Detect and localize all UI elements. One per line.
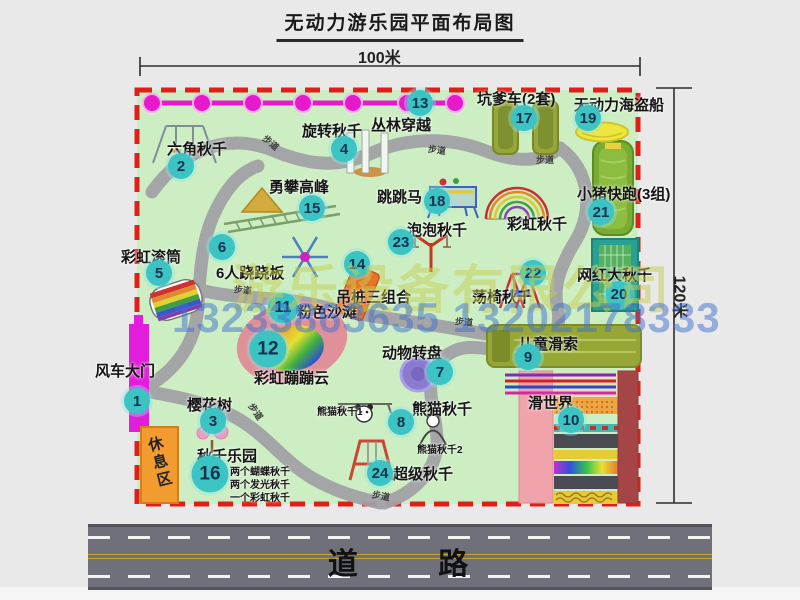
label-panda-swing-1: 熊猫秋千1 [317,403,363,418]
label-seesaw: 6人跷跷板 [216,262,284,283]
label-footpath: 步道 [536,153,554,166]
label-footpath: 步道 [427,142,447,157]
label-climbing-peak: 勇攀高峰 [269,176,329,197]
label-rainbow-swing: 彩虹秋千 [507,213,567,234]
badge-slide-world: 10 [558,407,584,433]
badge-pirate-ship: 19 [575,105,601,131]
label-hanging-post-combo: 吊桩三组合 [336,286,411,307]
badge-hanging-post-combo: 14 [344,251,370,277]
badge-seesaw: 6 [209,234,235,260]
badge-panda-swing: 8 [388,409,414,435]
badge-climbing-peak: 15 [299,195,325,221]
label-pit-cart: 坑爹车(2套) [477,88,555,109]
badge-super-swing: 24 [367,460,393,486]
label-super-swing: 超级秋千 [393,463,453,484]
road-label: 道 路 [88,539,712,583]
badge-jungle-crossing: 13 [407,90,433,116]
label-footpath: 步道 [454,314,473,329]
badge-chair-swing: 22 [520,260,546,286]
badge-animal-carousel: 7 [427,359,453,385]
label-jungle-crossing: 丛林穿越 [371,114,431,135]
badge-jumping-horse: 18 [424,188,450,214]
badge-swing-park: 16 [192,456,229,493]
label-bubble-swing: 泡泡秋千 [407,219,467,240]
badge-big-net-swing: 20 [606,281,632,307]
badge-pit-cart: 17 [511,105,537,131]
road: 道 路 [88,524,712,590]
dimension-height-label: 120米 [669,276,693,319]
badge-kids-zipline: 9 [515,344,541,370]
badge-hexagon-swing: 2 [168,153,194,179]
badge-piggy-run: 21 [588,199,614,225]
label-rainbow-cloud: 彩虹蹦蹦云 [254,367,329,388]
badge-pink-beach: 11 [268,293,298,323]
label-rotary-swing: 旋转秋千 [302,120,362,141]
badge-rainbow-cloud: 12 [250,331,287,368]
dimension-width-label: 100米 [358,44,401,68]
label-panda-swing-2: 熊猫秋千2 [417,441,463,456]
badge-rotary-swing: 4 [331,136,357,162]
page-title: 无动力游乐园平面布局图 [276,8,523,42]
park-layout-plan: 无动力游乐园平面布局图 [0,0,800,600]
label-windmill-gate: 风车大门 [95,360,155,381]
label-swing-park-sub3: 一个彩虹秋千 [230,489,290,504]
label-piggy-run: 小猪快跑(3组) [577,183,670,204]
label-chair-swing: 荡椅秋千 [472,286,532,307]
label-footpath: 步道 [233,282,252,297]
badge-windmill-gate: 1 [124,388,150,414]
badge-bubble-swing: 23 [388,229,414,255]
badge-rainbow-roller: 5 [146,260,172,286]
label-panda-swing: 熊猫秋千 [412,398,472,419]
badge-cherry-tree: 3 [200,408,226,434]
label-jumping-horse: 跳跳马 [377,186,422,207]
